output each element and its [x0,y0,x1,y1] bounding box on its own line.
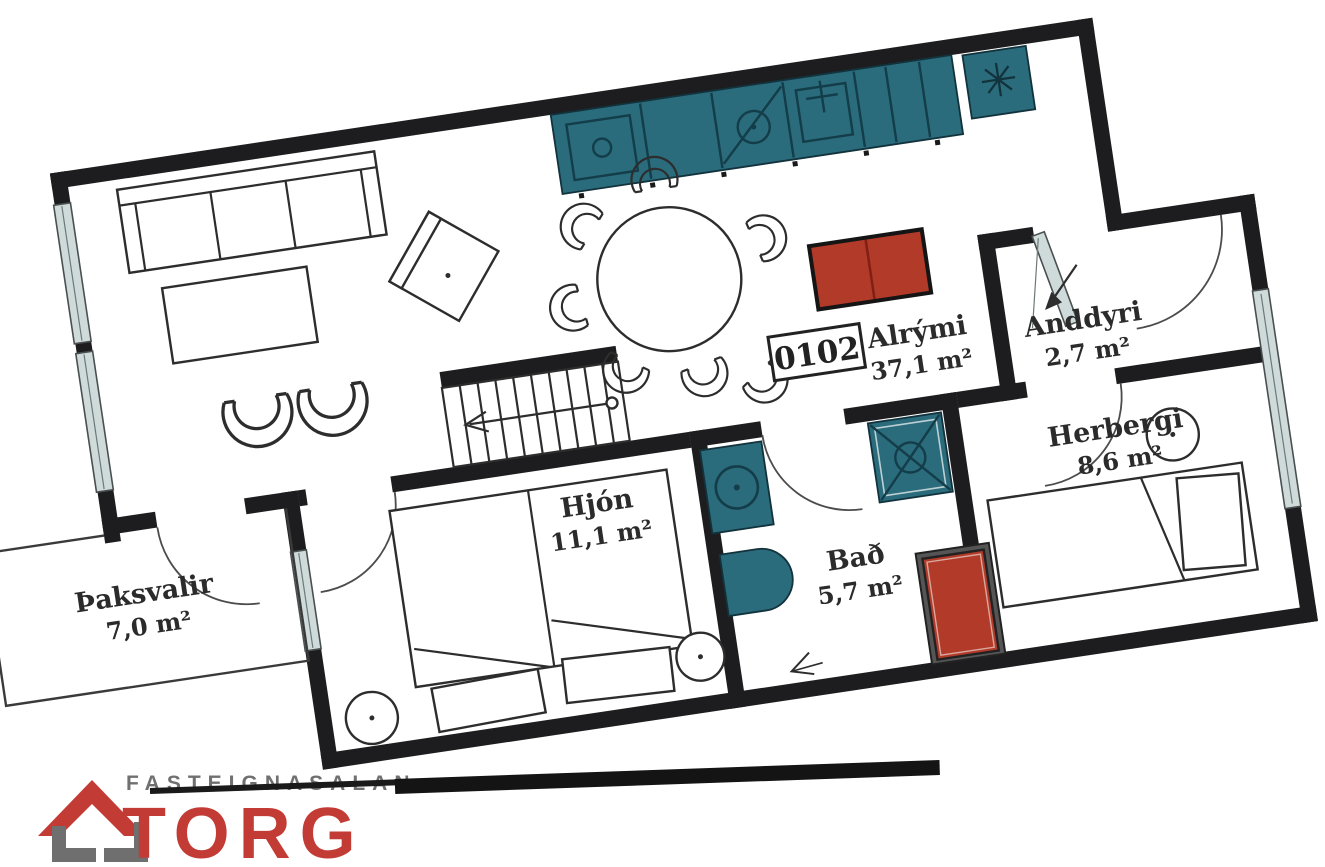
coffee-table [162,267,318,364]
svg-text:✳: ✳ [975,51,1021,110]
room-label-alrymi: Alrými 37,1 m² [864,310,975,387]
armchair [296,382,371,440]
apartment-plan: ✳ [0,0,1318,815]
living-window-lower [76,351,114,492]
ventilation-fan-icon: ✳ [962,46,1035,119]
red-table [809,229,931,309]
armchair [221,393,296,451]
floorplan-drawing: ✳ [0,0,1325,867]
unit-number-badge: 0102 [768,324,865,381]
lounge-chair [389,212,498,321]
logo-brand-text: TORG [122,794,365,867]
pillow [1177,473,1246,570]
room-label-thaksvalir: Þaksvalir 7,0 m² [73,568,221,650]
shower-icon [868,412,953,502]
toilet-icon [720,545,797,617]
room-label-bad: Bað 5,7 m² [811,536,905,610]
stair-direction-arrow [464,392,619,434]
double-bed [390,470,700,735]
washer-icon [916,543,1006,665]
single-bed [988,463,1258,608]
living-window-upper [54,203,92,344]
floor-drain-arrow-icon [789,651,824,677]
bathroom-sink-icon [700,441,774,533]
herbergi-window [1252,289,1300,509]
bedside-table [342,688,401,747]
dining-table [587,197,751,361]
bad-door-arc [762,422,862,522]
hjon-door-arc [308,492,408,592]
floorplan-page: ✳ [0,0,1325,867]
room-label-anddyri: Anddyri 2,7 m² [1021,296,1148,375]
